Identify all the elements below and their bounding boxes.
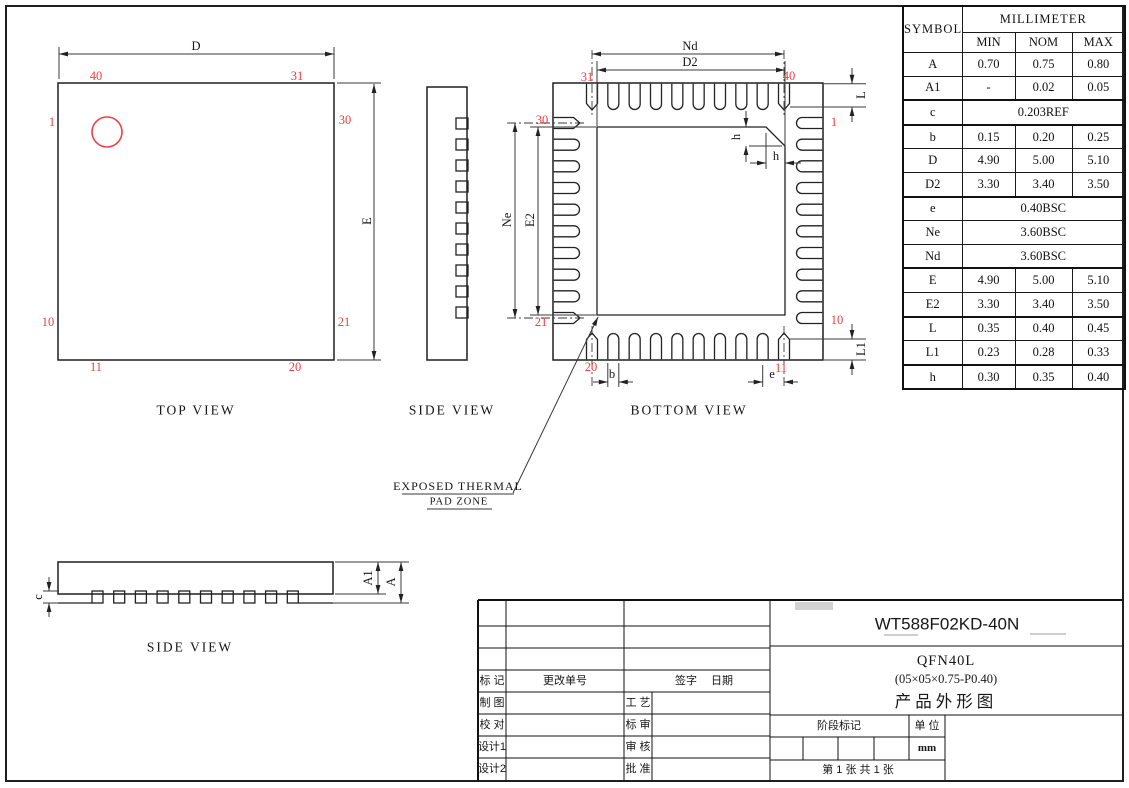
pin-number: 20: [289, 360, 302, 374]
product-code: WT588F02KD-40N: [875, 615, 1020, 634]
pin-pad: [554, 248, 580, 259]
dimension-arrowhead: [597, 68, 606, 73]
table-row: L0.350.400.45: [903, 317, 1125, 341]
lead-square: [92, 591, 103, 603]
pin-pad: [797, 313, 823, 324]
pin-number: 11: [775, 361, 787, 375]
lead-square: [456, 160, 468, 171]
pin-pad: [608, 334, 619, 360]
top-view-body: [58, 83, 334, 360]
table-row: b0.150.200.25: [903, 125, 1125, 149]
dimension-arrowhead: [850, 330, 855, 339]
table-row: e0.40BSC: [903, 197, 1125, 221]
table-header-nom: NOM: [1015, 33, 1072, 53]
pin-number: 1: [49, 115, 55, 129]
exposed-thermal-pad: [597, 127, 785, 315]
lead-square: [456, 286, 468, 297]
caption-side-view: SIDE VIEW: [147, 640, 233, 655]
pin-pad: [797, 183, 823, 194]
dimension-arrowhead: [399, 594, 404, 603]
bottom-view-pins: [507, 50, 822, 386]
pin-pad: [693, 84, 704, 110]
table-row: E23.303.403.50: [903, 292, 1125, 316]
dim-label-e2: E2: [523, 213, 537, 227]
dim-label-d2: D2: [682, 55, 697, 69]
review-label: 审 核: [625, 739, 650, 753]
table-header-max: MAX: [1072, 33, 1125, 53]
pin-pad: [554, 204, 580, 215]
pin-pad: [672, 334, 683, 360]
pin-pad: [554, 291, 580, 302]
pin-pad: [797, 269, 823, 280]
lead-square: [222, 591, 233, 603]
unit-label: 单 位: [914, 718, 939, 732]
design1-label: 设计1: [478, 740, 506, 753]
change-order-label: 更改单号: [543, 673, 587, 687]
dimension-arrowhead: [850, 75, 855, 84]
drawing-sheet: D E 40 31 1 30 10 21 11 20 TOP VIEW SIDE…: [0, 0, 1129, 788]
table-row: Nd3.60BSC: [903, 244, 1125, 268]
pin-number: 1: [831, 115, 837, 129]
pin-pad: [797, 118, 823, 129]
table-row: c0.203REF: [903, 100, 1125, 125]
pin-pad: [672, 84, 683, 110]
dimension-arrowhead: [376, 585, 381, 594]
dimension-arrowhead: [599, 380, 608, 385]
dimension-arrowhead: [744, 146, 749, 155]
design2-label: 设计2: [478, 762, 506, 775]
date-label: 日期: [711, 674, 733, 687]
dimension-arrowhead: [376, 562, 381, 571]
pin-pad: [629, 84, 640, 110]
pin-pad: [757, 334, 768, 360]
pin-number: 21: [338, 315, 351, 329]
table-header-unit: MILLIMETER: [962, 6, 1125, 33]
dim-label-h-vertical: h: [729, 133, 743, 140]
lead-square: [456, 181, 468, 192]
pin-pad: [651, 334, 662, 360]
caption-side-view: SIDE VIEW: [409, 403, 495, 418]
pin-pad: [608, 84, 619, 110]
dim-label-l: L: [854, 91, 868, 99]
dimension-arrowhead: [850, 107, 855, 116]
dimension-arrowhead: [372, 351, 377, 360]
pin-number: 31: [291, 69, 304, 83]
pin-number: 30: [339, 113, 352, 127]
pin-pad: [797, 204, 823, 215]
pin-pad: [693, 334, 704, 360]
dim-label-d: D: [191, 39, 200, 53]
table-header-symbol: SYMBOL: [903, 6, 962, 53]
pin-pad: [554, 269, 580, 280]
mark-label: 标 记: [479, 673, 504, 687]
table-row: h0.300.350.40: [903, 365, 1125, 390]
dimension-arrowhead: [47, 603, 52, 612]
pin-pad: [554, 139, 580, 150]
lead-square: [456, 139, 468, 150]
pin-pad: [757, 84, 768, 110]
lead-square: [456, 223, 468, 234]
pin-number: 11: [90, 360, 102, 374]
dim-label-a1: A1: [361, 570, 375, 585]
dimension-arrowhead: [59, 52, 68, 57]
dim-label-c: c: [31, 594, 45, 600]
dimension-arrowhead: [372, 84, 377, 93]
pin-pad: [736, 334, 747, 360]
lead-square: [201, 591, 212, 603]
pin-pad: [797, 226, 823, 237]
dimension-arrowhead: [399, 562, 404, 571]
pin-pad: [797, 161, 823, 172]
pin-pad: [715, 84, 726, 110]
table-row: A1-0.020.05: [903, 76, 1125, 100]
caption-top-view: TOP VIEW: [156, 403, 235, 418]
lead-square: [456, 265, 468, 276]
lead-square: [287, 591, 298, 603]
draft-label: 制 图: [479, 696, 504, 709]
pin-pad: [554, 161, 580, 172]
standard-review-label: 标 审: [625, 717, 650, 731]
pin-number: 31: [581, 70, 594, 84]
craft-label: 工 艺: [625, 696, 650, 709]
dimension-arrowhead: [785, 161, 794, 166]
pin-number: 40: [90, 69, 103, 83]
unit-value: mm: [918, 742, 936, 754]
smudge-mark: [795, 602, 833, 610]
pin-number: 20: [585, 360, 598, 374]
pin-number: 10: [42, 315, 55, 329]
dimension-arrowhead: [775, 52, 784, 57]
pin-pad: [651, 84, 662, 110]
pin-number: 30: [536, 113, 549, 127]
sheet-info: 第 1 张 共 1 张: [822, 762, 894, 776]
sign-label: 签字: [675, 673, 697, 687]
thermal-note-line2: PAD ZONE: [430, 497, 489, 508]
pin-pad: [797, 139, 823, 150]
pin1-indicator-circle: [92, 117, 122, 147]
pin-pad: [554, 183, 580, 194]
dimension-arrowhead: [754, 380, 763, 385]
dimension-arrowhead: [619, 380, 628, 385]
package-type: QFN40L: [917, 653, 975, 669]
pin-number: 21: [535, 315, 548, 329]
side-view-body: [58, 562, 333, 594]
dimension-arrowhead: [325, 52, 334, 57]
lead-square: [456, 202, 468, 213]
dim-label-h-horizontal: h: [773, 149, 780, 163]
table-row: L10.230.280.33: [903, 341, 1125, 365]
dimension-arrowhead: [47, 582, 52, 591]
approve-label: 批 准: [625, 761, 650, 775]
dimension-arrowhead: [784, 380, 793, 385]
side-view-top: SIDE VIEW: [409, 87, 495, 418]
top-view: D E 40 31 1 30 10 21 11 20 TOP VIEW: [42, 39, 381, 418]
lead-square: [179, 591, 190, 603]
dimension-arrowhead: [536, 127, 541, 136]
side-view-bottom: c A1 A SIDE VIEW: [31, 562, 409, 655]
pin-pad: [554, 226, 580, 237]
dimension-arrowhead: [744, 118, 749, 127]
doc-type: 产品外形图: [895, 692, 998, 711]
lead-square: [157, 591, 168, 603]
dim-label-l1: L1: [854, 342, 868, 356]
pin-number: 10: [831, 313, 844, 327]
table-row: Ne3.60BSC: [903, 221, 1125, 245]
bottom-view: Nd D2 Ne E2 L L1 h h b e 31 40 30 21 1 1…: [500, 39, 868, 418]
dimension-arrowhead: [513, 123, 518, 132]
table-row: D23.303.403.50: [903, 172, 1125, 196]
pin-pad: [715, 334, 726, 360]
pin-number: 40: [783, 69, 796, 83]
caption-bottom-view: BOTTOM VIEW: [630, 403, 747, 418]
table-row: A0.700.750.80: [903, 53, 1125, 77]
dim-label-e: E: [360, 217, 374, 225]
side-view-leads: [92, 591, 298, 603]
dimension-table: SYMBOL MILLIMETER MIN NOM MAX A0.700.750…: [902, 5, 1124, 390]
bottom-view-body: [553, 83, 823, 360]
dimension-arrowhead: [757, 161, 766, 166]
lead-square: [135, 591, 146, 603]
proofread-label: 校 对: [479, 717, 504, 731]
lead-square: [114, 591, 125, 603]
lead-square: [456, 118, 468, 129]
lead-square: [266, 591, 277, 603]
pin-pad: [797, 248, 823, 259]
pin-pad: [629, 334, 640, 360]
table-header-min: MIN: [962, 33, 1015, 53]
table-row: E4.905.005.10: [903, 268, 1125, 292]
dimension-arrowhead: [592, 52, 601, 57]
pin-pad: [797, 291, 823, 302]
dim-label-ne: Ne: [500, 212, 514, 227]
title-block: 标 记 更改单号 签字 日期 制 图 工 艺 校 对 标 审 设计1 审 核 设…: [478, 600, 1123, 781]
stage-mark-label: 阶段标记: [817, 718, 861, 732]
thermal-note-line1: EXPOSED THERMAL: [393, 479, 523, 493]
lead-square: [244, 591, 255, 603]
dimension-arrowhead: [850, 360, 855, 369]
side-view-leads: [456, 118, 468, 318]
table-row: D4.905.005.10: [903, 149, 1125, 173]
dimension-arrowhead: [513, 309, 518, 318]
lead-square: [456, 244, 468, 255]
dim-label-b: b: [609, 367, 615, 381]
pin-pad: [736, 84, 747, 110]
dim-label-a: A: [384, 577, 398, 586]
lead-square: [456, 307, 468, 318]
dimension-arrowhead: [536, 306, 541, 315]
package-size: (05×05×0.75-P0.40): [895, 672, 997, 686]
dim-label-nd: Nd: [682, 39, 698, 53]
dimension-arrowhead: [592, 317, 598, 326]
